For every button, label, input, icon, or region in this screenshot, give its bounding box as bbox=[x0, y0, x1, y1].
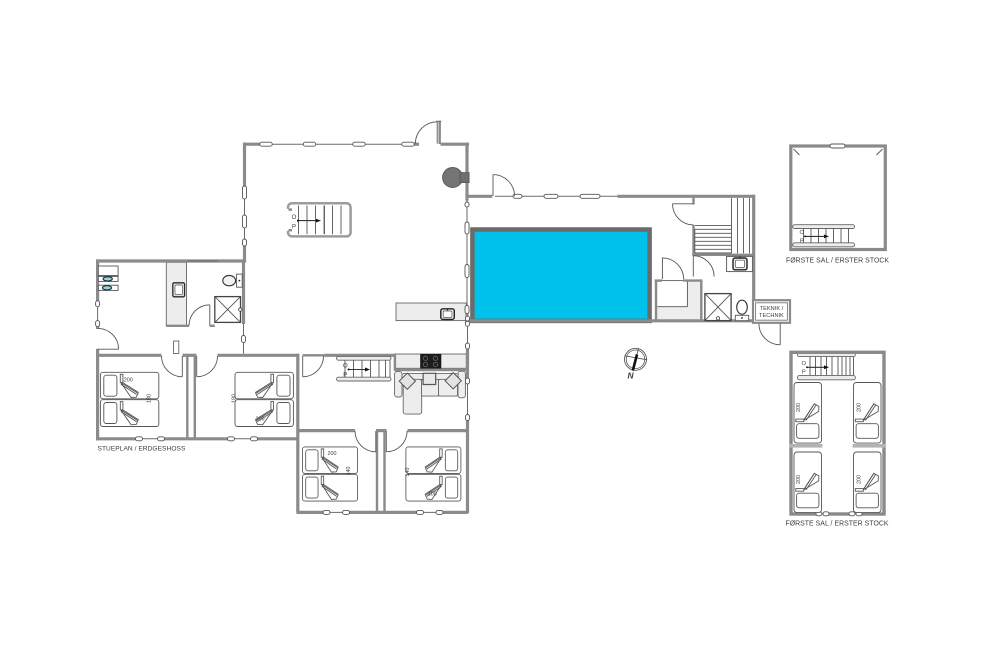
svg-text:140: 140 bbox=[346, 467, 352, 476]
svg-text:180: 180 bbox=[231, 394, 237, 403]
svg-text:P: P bbox=[292, 224, 296, 230]
svg-text:O: O bbox=[800, 230, 805, 236]
svg-text:200: 200 bbox=[428, 492, 437, 498]
svg-text:200: 200 bbox=[796, 403, 802, 412]
svg-text:180: 180 bbox=[146, 394, 152, 403]
svg-text:O: O bbox=[343, 364, 348, 370]
svg-text:200: 200 bbox=[124, 378, 133, 384]
svg-text:200: 200 bbox=[856, 475, 862, 484]
svg-text:200: 200 bbox=[856, 403, 862, 412]
svg-text:P: P bbox=[800, 238, 804, 244]
svg-text:FØRSTE SAL / ERSTER STOCK: FØRSTE SAL / ERSTER STOCK bbox=[785, 521, 888, 528]
svg-text:O: O bbox=[802, 361, 807, 367]
svg-text:P: P bbox=[343, 372, 347, 378]
svg-text:O: O bbox=[292, 215, 297, 221]
svg-text:200: 200 bbox=[796, 475, 802, 484]
svg-text:FØRSTE SAL / ERSTER STOCK: FØRSTE SAL / ERSTER STOCK bbox=[786, 258, 889, 265]
svg-text:200: 200 bbox=[256, 416, 265, 422]
svg-text:STUEPLAN / ERDGESHOSS: STUEPLAN / ERDGESHOSS bbox=[98, 446, 186, 453]
svg-text:TECHNIK: TECHNIK bbox=[759, 313, 784, 319]
svg-text:TEKNIK /: TEKNIK / bbox=[760, 306, 784, 312]
svg-text:N: N bbox=[627, 371, 634, 381]
svg-text:P: P bbox=[802, 370, 806, 376]
svg-text:200: 200 bbox=[328, 451, 337, 457]
svg-text:140: 140 bbox=[405, 468, 411, 477]
